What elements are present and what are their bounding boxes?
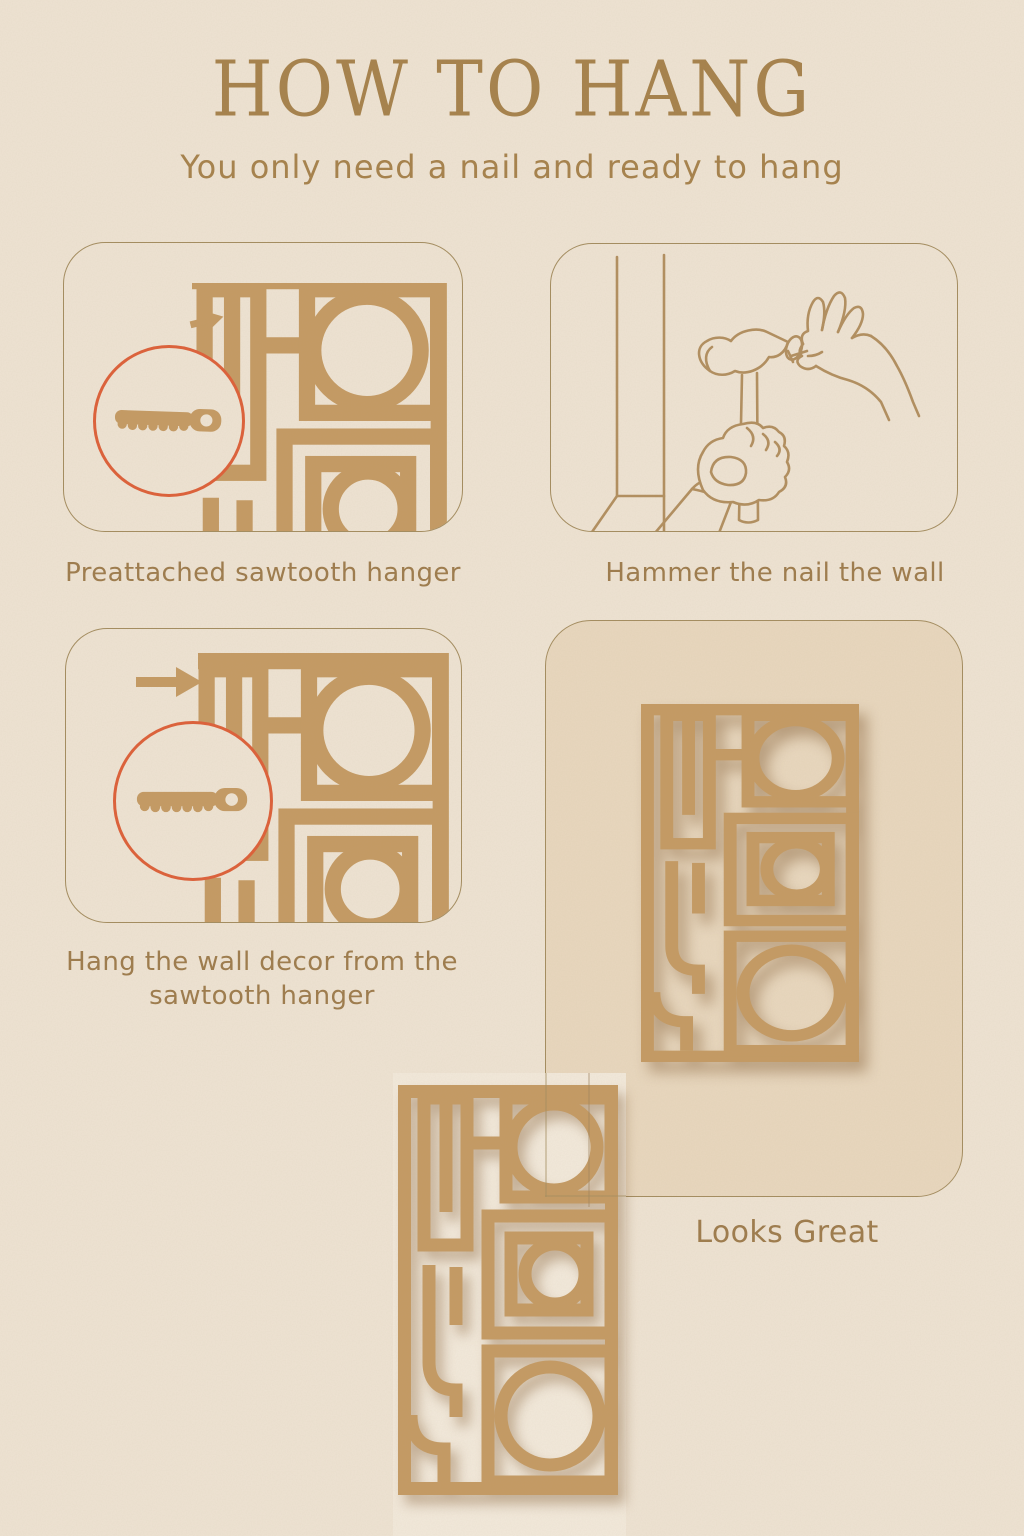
step-1-caption: Preattached sawtooth hanger [43,556,483,590]
hung-wall-decor-graphic [641,704,859,1062]
step-3-caption: Hang the wall decor from the sawtooth ha… [32,945,492,1014]
header: HOW TO HANG You only need a nail and rea… [0,44,1024,186]
zoom-highlight-circle [113,721,273,881]
page-title: HOW TO HANG [0,44,1024,134]
step-1-panel [63,242,463,532]
page: HOW TO HANG You only need a nail and rea… [0,0,1024,1536]
sawtooth-hanger-icon [135,782,251,821]
right-arrow-icon [136,665,204,699]
panel-border-overlay-horizontal [545,1195,626,1197]
photo-wall-seam-line [588,1073,590,1207]
step-3-panel [65,628,462,923]
panel-border-overlay-vertical [545,1073,547,1197]
holding-hand [655,423,789,532]
sawtooth-hanger-icon [112,400,225,442]
hammer-nail-illustration [551,244,958,532]
geometric-wall-decor-graphic [398,1085,618,1495]
zoom-highlight-circle [93,345,245,497]
hand-holding-nail-icon [788,292,919,420]
step-2-caption: Hammer the nail the wall [555,556,995,590]
wall-edge-lines [592,255,664,532]
product-photo [393,1073,626,1536]
step-4-caption: Looks Great [587,1213,987,1253]
step-2-panel [550,243,958,532]
page-subtitle: You only need a nail and ready to hang [0,148,1024,186]
